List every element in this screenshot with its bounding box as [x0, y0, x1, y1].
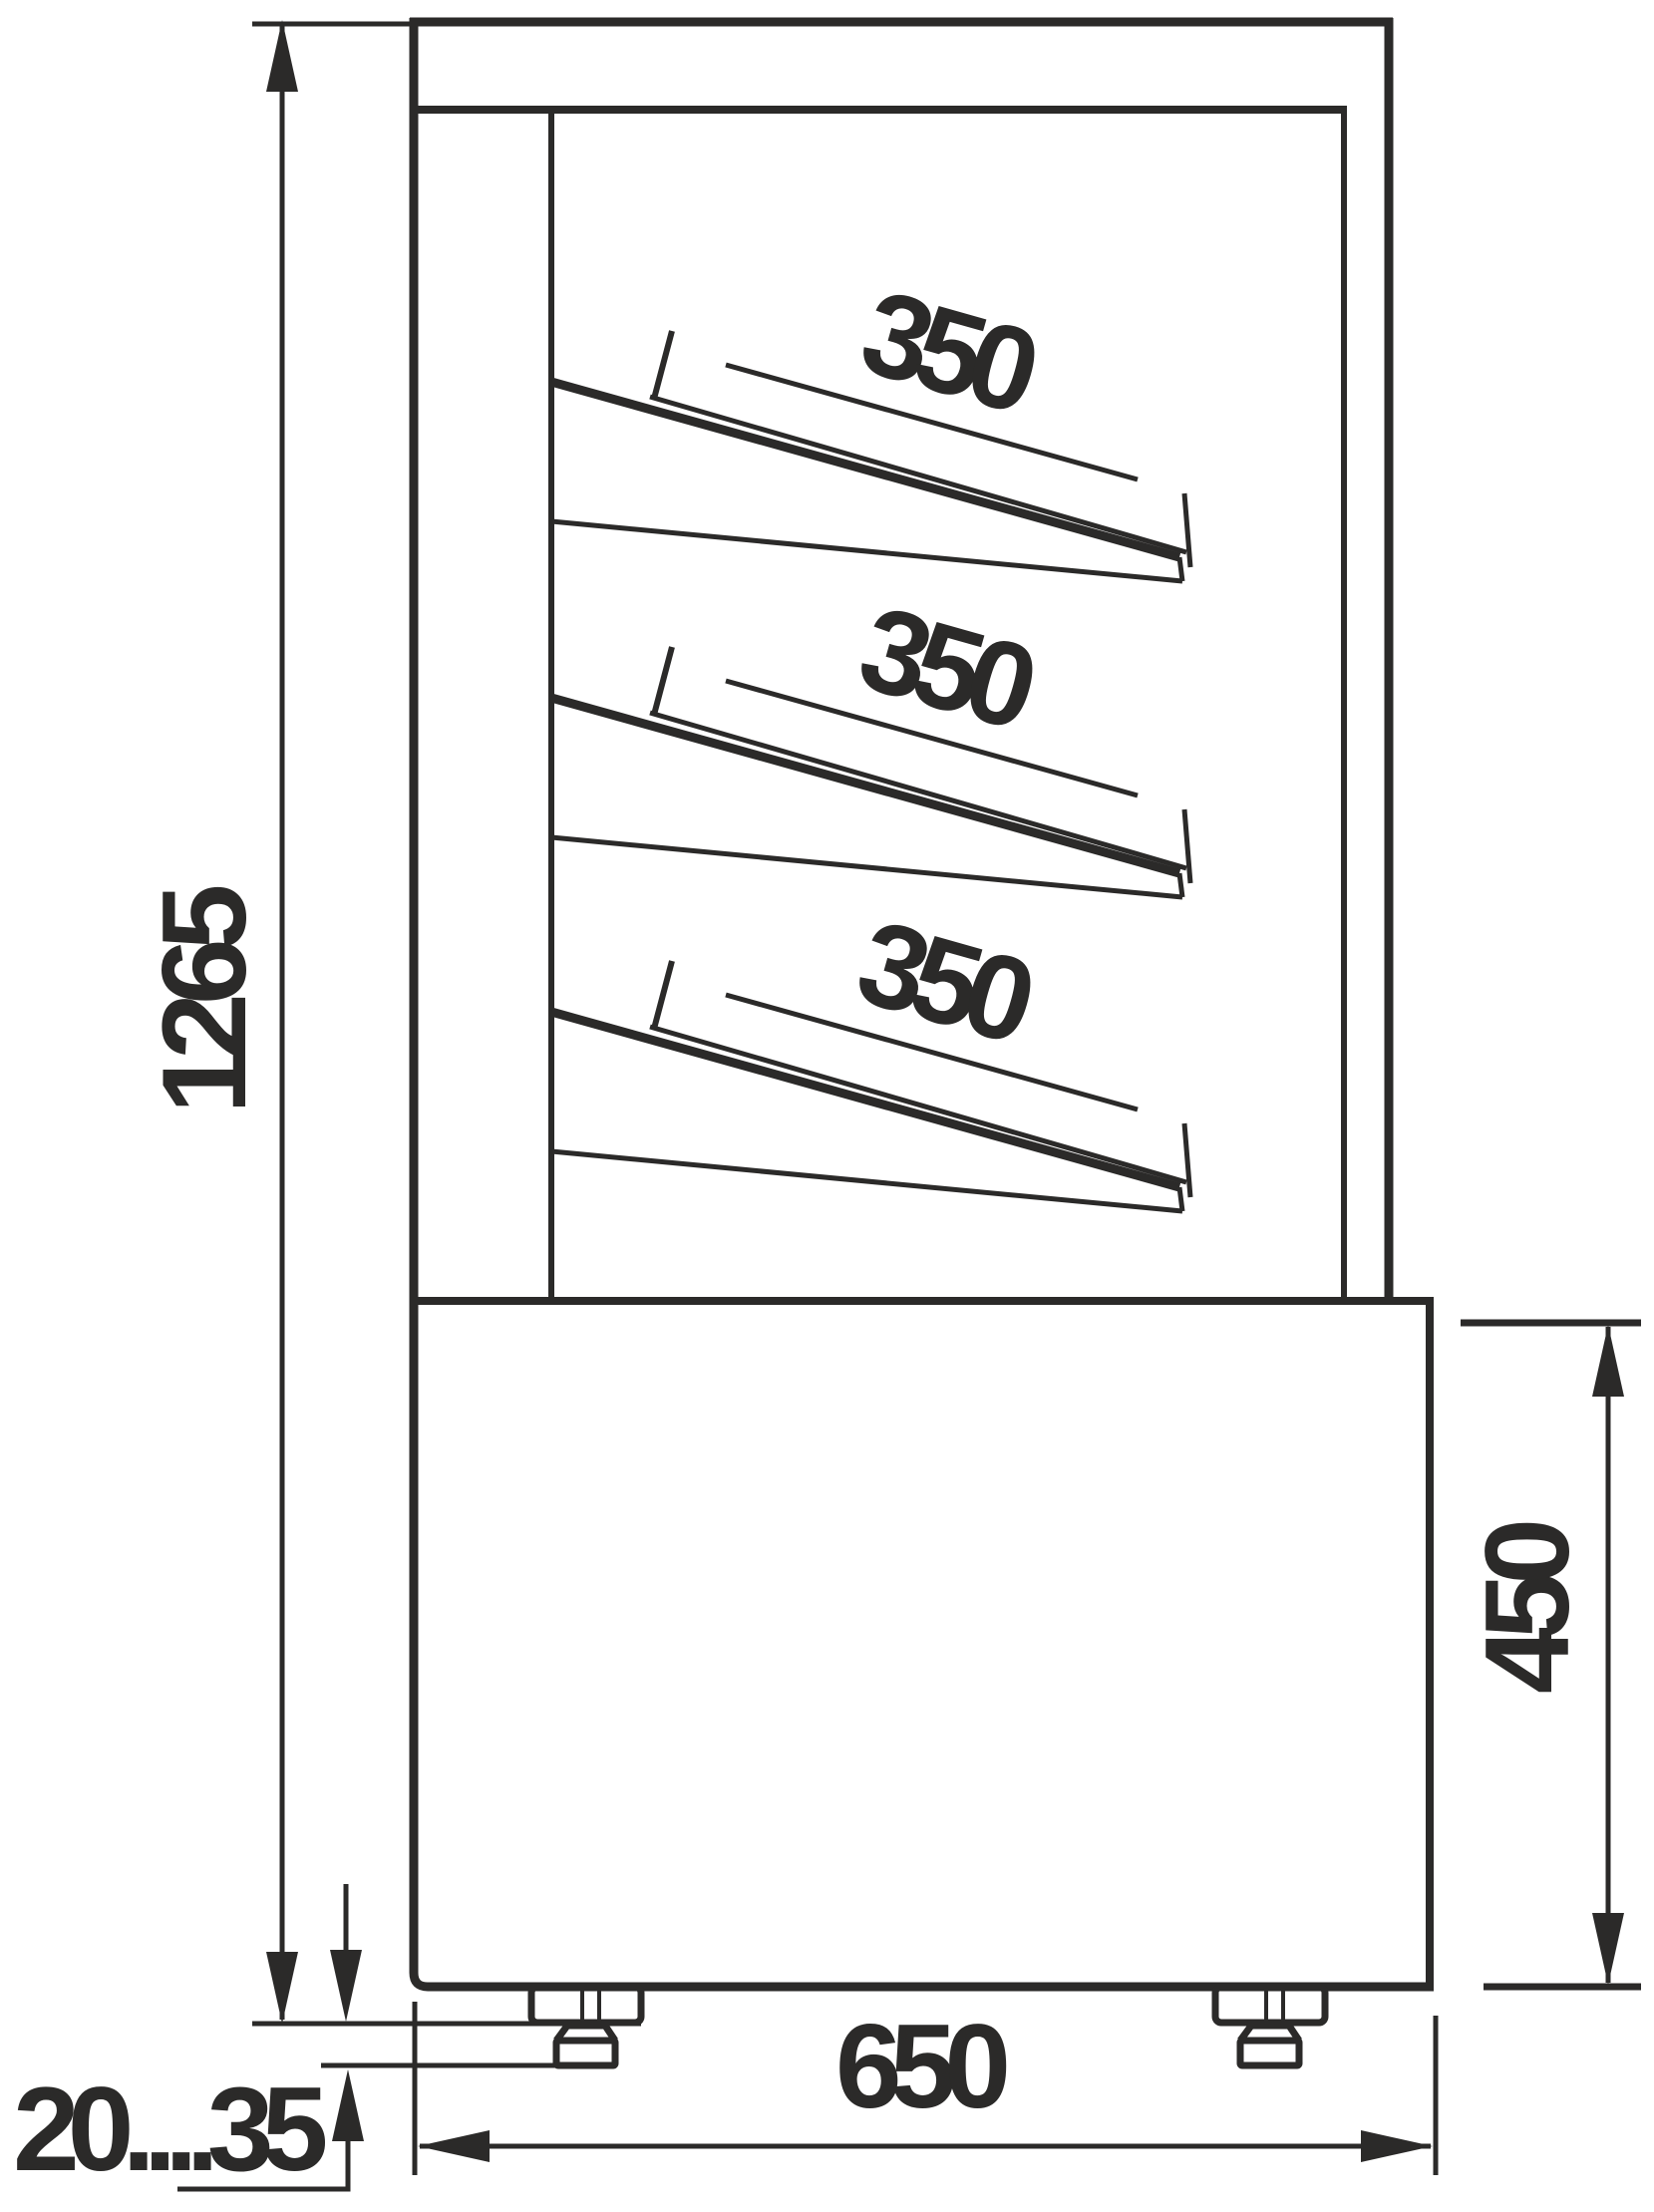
foot-right-stem — [1215, 1987, 1325, 2023]
shelf-3-left-stub — [654, 961, 672, 1029]
dim-450-arrow-down — [1592, 1913, 1624, 1985]
dimension-label-base-height: 450 — [1461, 1523, 1594, 1694]
dim-1265-arrow-down — [266, 1952, 298, 2024]
shelf-depth-label-3: 350 — [844, 894, 1045, 1070]
foot-left-stem — [531, 1987, 641, 2023]
dimension-label-leg-adjustment: 20....35 — [13, 2062, 326, 2196]
shelf-3-tip-edge — [1179, 1187, 1182, 1211]
shelf-1-tip-edge — [1179, 557, 1182, 581]
dimension-label-overall-height: 1265 — [138, 886, 271, 1113]
shelf-3-right-stub — [1184, 1123, 1190, 1197]
dim-650-arrow-right — [1361, 2130, 1433, 2162]
dim-legs-arrow-up — [332, 2069, 364, 2141]
dimension-label-overall-depth: 650 — [835, 2000, 1006, 2133]
dim-650-arrow-left — [418, 2130, 490, 2162]
foot-right-pad — [1240, 2041, 1299, 2065]
dim-legs-arrow-down — [330, 1950, 362, 2022]
dim-1265-arrow-up — [266, 20, 298, 92]
shelf-2-tip-edge — [1179, 873, 1182, 897]
shelf-depth-label-2: 350 — [846, 580, 1047, 756]
foot-left-pad — [556, 2041, 615, 2065]
foot-right — [1215, 1987, 1325, 2065]
shelf-1-right-stub — [1184, 493, 1190, 567]
shelf-2-right-stub — [1184, 809, 1190, 883]
technical-drawing: 1265 350 350 350 450 650 20....35 — [0, 0, 1654, 2212]
shelf-2-left-stub — [654, 647, 672, 715]
shelf-depth-label-1: 350 — [848, 264, 1049, 440]
shelf-1-left-stub — [654, 331, 672, 399]
dim-450-arrow-up — [1592, 1325, 1624, 1397]
